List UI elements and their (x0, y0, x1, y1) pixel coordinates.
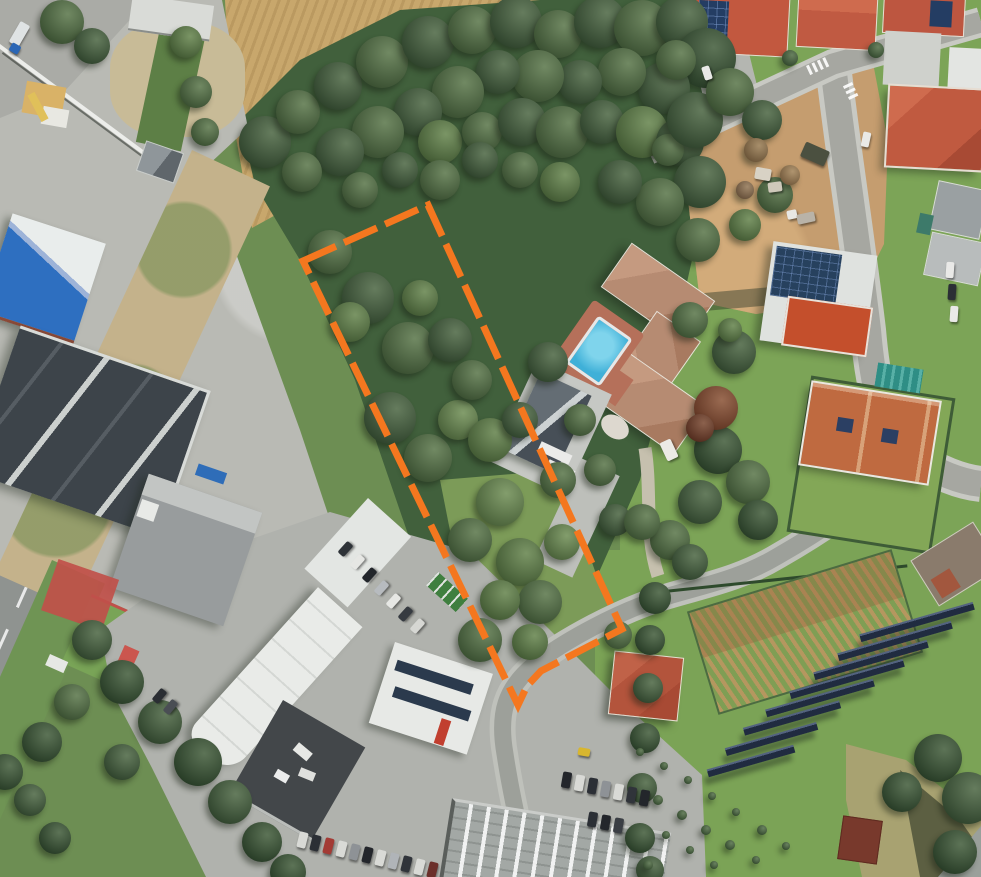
parcel-annotation (0, 0, 981, 877)
satellite-image (0, 0, 981, 877)
parcel-boundary-outline (303, 205, 622, 705)
